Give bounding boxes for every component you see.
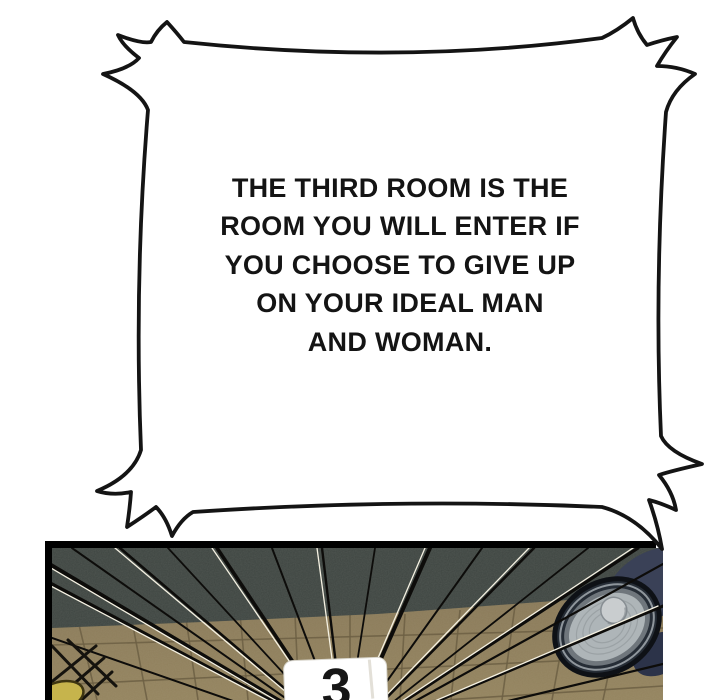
speech-bubble-text: THE THIRD ROOM IS THE ROOM YOU WILL ENTE… [110, 169, 690, 361]
speech-bubble-line: THE THIRD ROOM IS THE [110, 169, 690, 207]
comic-strip: 3 THE THIRD ROOM IS THE ROOM YOU WILL EN… [0, 0, 720, 700]
speech-bubble-line: AND WOMAN. [110, 323, 690, 361]
speech-bubble-line: YOU CHOOSE TO GIVE UP [110, 246, 690, 284]
speech-bubble-line: ON YOUR IDEAL MAN [110, 284, 690, 322]
speech-bubble-line: ROOM YOU WILL ENTER IF [110, 207, 690, 245]
